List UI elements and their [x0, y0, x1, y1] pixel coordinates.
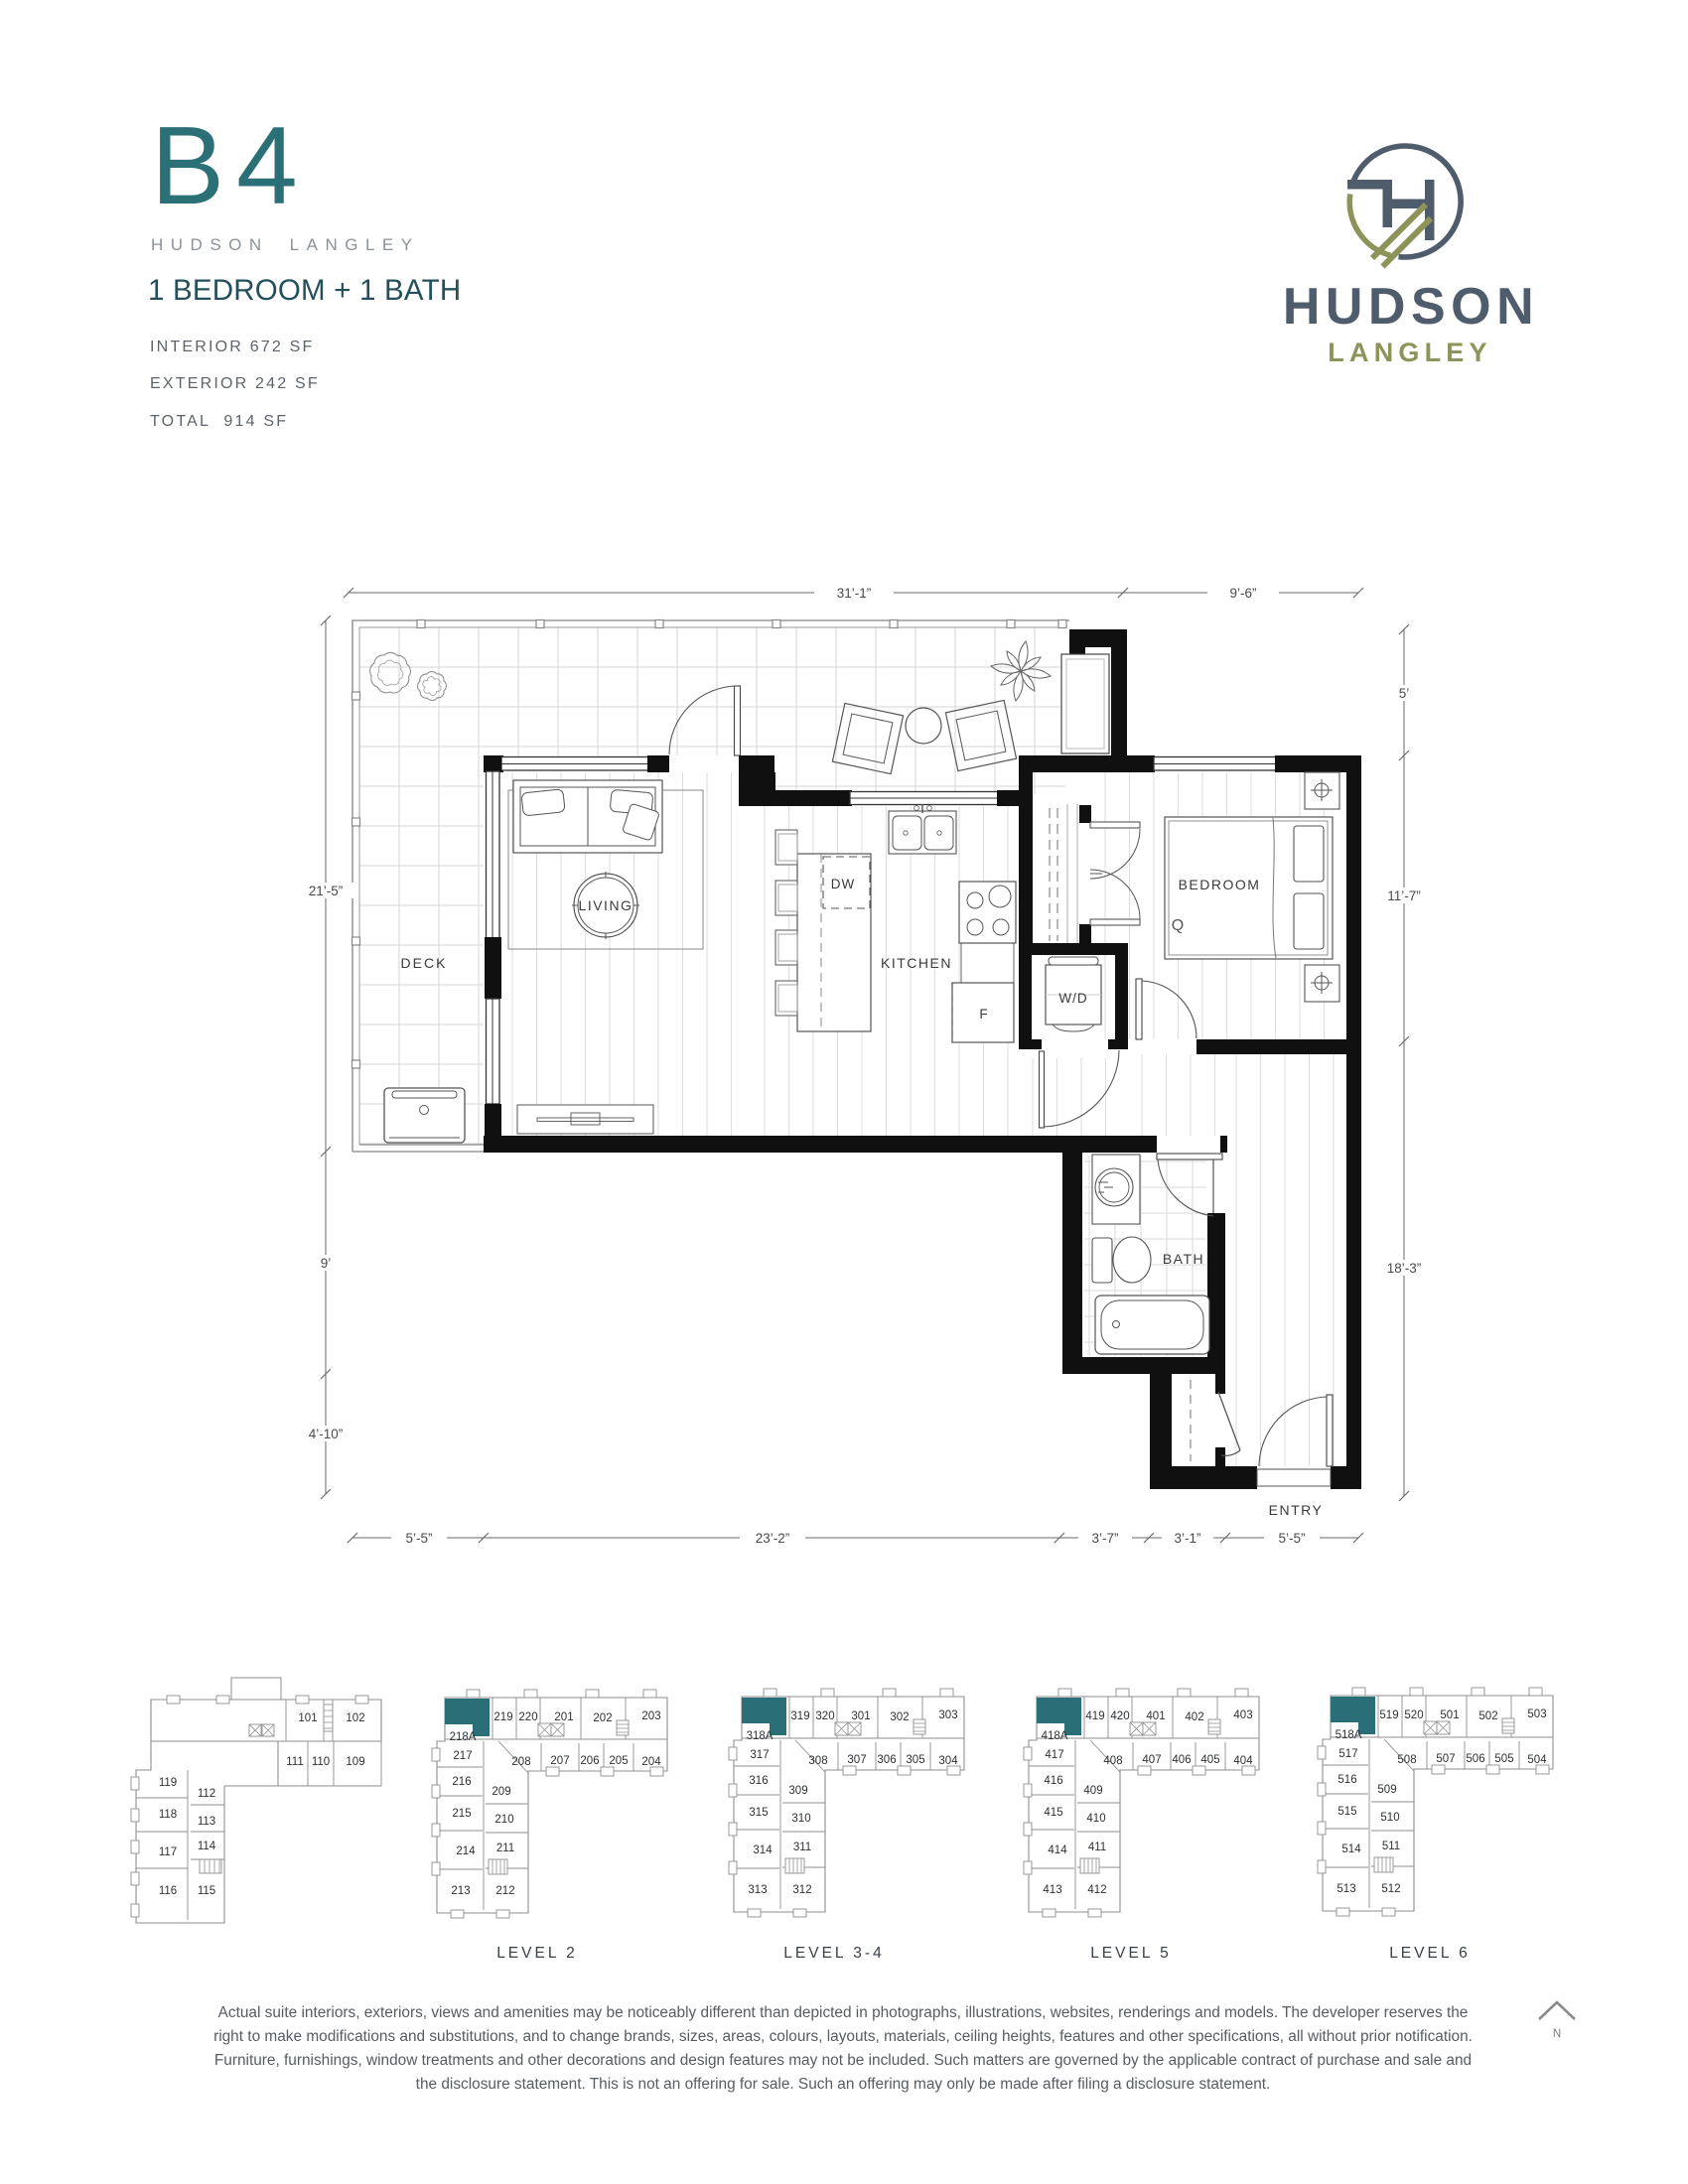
svg-text:211: 211 [496, 1843, 514, 1854]
svg-text:403: 403 [1233, 1709, 1252, 1721]
svg-text:402: 402 [1185, 1711, 1203, 1723]
svg-text:216: 216 [452, 1776, 471, 1788]
svg-text:517: 517 [1338, 1748, 1357, 1760]
svg-text:112: 112 [198, 1788, 215, 1800]
svg-text:304: 304 [938, 1755, 958, 1767]
svg-text:209: 209 [492, 1786, 510, 1798]
svg-text:9’: 9’ [321, 1256, 332, 1271]
svg-text:315: 315 [749, 1807, 768, 1819]
svg-text:505: 505 [1494, 1753, 1513, 1765]
svg-text:LANGLEY: LANGLEY [1328, 338, 1491, 367]
svg-text:306: 306 [877, 1754, 896, 1766]
svg-text:518A: 518A [1336, 1729, 1362, 1741]
svg-text:214: 214 [456, 1845, 476, 1857]
svg-text:23’-2”: 23’-2” [756, 1531, 790, 1546]
svg-text:218A: 218A [450, 1731, 477, 1743]
svg-text:313: 313 [748, 1884, 767, 1896]
svg-text:31’-1”: 31’-1” [837, 586, 872, 601]
svg-text:511: 511 [1382, 1841, 1400, 1852]
svg-text:205: 205 [609, 1755, 628, 1767]
svg-text:115: 115 [198, 1885, 215, 1897]
svg-text:213: 213 [451, 1885, 470, 1897]
svg-text:305: 305 [906, 1754, 924, 1766]
svg-text:21’-5”: 21’-5” [309, 884, 344, 898]
svg-text:312: 312 [792, 1884, 811, 1896]
svg-text:111: 111 [286, 1756, 303, 1768]
svg-text:418A: 418A [1042, 1730, 1068, 1742]
svg-text:506: 506 [1466, 1753, 1484, 1765]
svg-text:203: 203 [641, 1710, 660, 1722]
svg-text:4’-10”: 4’-10” [309, 1427, 344, 1441]
svg-text:406: 406 [1172, 1754, 1191, 1766]
svg-text:514: 514 [1341, 1843, 1361, 1855]
svg-text:the disclosure statement. This: the disclosure statement. This is not an… [416, 2076, 1271, 2093]
svg-text:5’: 5’ [1399, 686, 1410, 701]
svg-text:504: 504 [1527, 1754, 1547, 1766]
svg-text:413: 413 [1043, 1884, 1061, 1896]
svg-text:310: 310 [791, 1813, 810, 1825]
svg-text:LEVEL 3-4: LEVEL 3-4 [783, 1945, 884, 1962]
svg-text:109: 109 [346, 1756, 364, 1768]
svg-text:508: 508 [1397, 1754, 1416, 1766]
svg-text:5’-5”: 5’-5” [1278, 1531, 1305, 1546]
svg-text:DW: DW [831, 877, 856, 891]
svg-text:HUDSON: HUDSON [1283, 278, 1539, 336]
svg-text:DECK: DECK [401, 955, 448, 971]
svg-text:309: 309 [788, 1785, 807, 1797]
svg-text:401: 401 [1146, 1710, 1165, 1722]
svg-text:204: 204 [641, 1756, 661, 1768]
svg-text:516: 516 [1337, 1774, 1356, 1786]
svg-text:308: 308 [808, 1755, 827, 1767]
svg-text:519: 519 [1379, 1709, 1398, 1721]
svg-text:LEVEL 6: LEVEL 6 [1389, 1945, 1471, 1962]
svg-text:Actual suite interiors, exteri: Actual suite interiors, exteriors, views… [218, 2004, 1469, 2021]
svg-text:217: 217 [453, 1750, 472, 1762]
svg-text:219: 219 [493, 1711, 512, 1723]
svg-text:LIVING: LIVING [579, 897, 633, 913]
svg-text:501: 501 [1440, 1709, 1459, 1721]
svg-text:419: 419 [1085, 1710, 1104, 1722]
svg-text:right to make modifications an: right to make modifications and substitu… [213, 2028, 1473, 2045]
svg-text:W/D: W/D [1058, 991, 1087, 1006]
svg-text:509: 509 [1377, 1784, 1396, 1796]
svg-text:319: 319 [790, 1710, 809, 1722]
svg-text:220: 220 [518, 1711, 537, 1723]
svg-text:317: 317 [750, 1749, 769, 1761]
svg-text:208: 208 [511, 1756, 530, 1768]
svg-text:118: 118 [159, 1809, 177, 1821]
svg-text:F: F [979, 1007, 988, 1022]
svg-text:520: 520 [1404, 1709, 1423, 1721]
svg-text:116: 116 [159, 1885, 177, 1897]
svg-text:301: 301 [851, 1710, 870, 1722]
svg-text:303: 303 [938, 1709, 957, 1721]
svg-text:BATH: BATH [1163, 1251, 1204, 1267]
svg-text:405: 405 [1200, 1754, 1219, 1766]
svg-text:3’-7”: 3’-7” [1091, 1531, 1118, 1546]
svg-text:5’-5”: 5’-5” [405, 1531, 432, 1546]
svg-text:414: 414 [1048, 1844, 1067, 1856]
svg-text:420: 420 [1110, 1710, 1129, 1722]
svg-text:BEDROOM: BEDROOM [1179, 877, 1261, 892]
svg-text:LEVEL 2: LEVEL 2 [496, 1945, 578, 1962]
svg-text:515: 515 [1337, 1806, 1356, 1818]
svg-text:407: 407 [1142, 1754, 1161, 1766]
svg-text:212: 212 [495, 1885, 514, 1897]
svg-text:307: 307 [847, 1754, 866, 1766]
svg-text:409: 409 [1083, 1785, 1102, 1797]
svg-text:N: N [1553, 2028, 1561, 2040]
svg-text:Furniture, furnishings, window: Furniture, furnishings, window treatment… [214, 2052, 1472, 2069]
svg-text:513: 513 [1336, 1883, 1355, 1895]
svg-text:117: 117 [159, 1846, 177, 1858]
svg-text:510: 510 [1380, 1812, 1399, 1824]
svg-text:207: 207 [550, 1755, 569, 1767]
svg-text:119: 119 [159, 1777, 177, 1789]
svg-text:507: 507 [1436, 1753, 1455, 1765]
svg-text:101: 101 [298, 1712, 317, 1724]
svg-text:206: 206 [580, 1755, 599, 1767]
svg-text:215: 215 [452, 1808, 471, 1820]
svg-text:320: 320 [815, 1710, 834, 1722]
svg-text:LEVEL 5: LEVEL 5 [1090, 1945, 1172, 1962]
svg-text:512: 512 [1381, 1883, 1400, 1895]
svg-text:503: 503 [1527, 1708, 1546, 1720]
svg-text:502: 502 [1478, 1710, 1497, 1722]
svg-text:404: 404 [1233, 1755, 1253, 1767]
svg-text:3’-1”: 3’-1” [1174, 1531, 1200, 1546]
svg-text:314: 314 [753, 1844, 773, 1856]
svg-text:11’-7”: 11’-7” [1387, 888, 1421, 903]
svg-text:Q: Q [1172, 917, 1184, 934]
svg-text:18’-3”: 18’-3” [1387, 1261, 1422, 1276]
svg-text:415: 415 [1044, 1807, 1062, 1819]
svg-text:412: 412 [1087, 1884, 1106, 1896]
svg-text:KITCHEN: KITCHEN [881, 955, 952, 971]
svg-text:410: 410 [1086, 1813, 1105, 1825]
svg-text:ENTRY: ENTRY [1269, 1502, 1324, 1518]
svg-text:318A: 318A [747, 1730, 774, 1742]
svg-text:316: 316 [749, 1775, 768, 1787]
svg-text:411: 411 [1088, 1842, 1106, 1853]
svg-text:114: 114 [198, 1841, 216, 1852]
svg-text:302: 302 [890, 1711, 909, 1723]
svg-text:311: 311 [793, 1842, 811, 1853]
svg-text:9’-6”: 9’-6” [1229, 586, 1256, 601]
svg-text:210: 210 [494, 1814, 513, 1826]
svg-text:201: 201 [554, 1711, 573, 1723]
svg-text:408: 408 [1103, 1755, 1122, 1767]
svg-text:202: 202 [593, 1712, 612, 1724]
svg-text:416: 416 [1044, 1775, 1062, 1787]
svg-text:113: 113 [198, 1816, 215, 1828]
svg-text:102: 102 [346, 1712, 364, 1724]
svg-text:110: 110 [312, 1756, 330, 1768]
svg-text:417: 417 [1045, 1749, 1063, 1761]
